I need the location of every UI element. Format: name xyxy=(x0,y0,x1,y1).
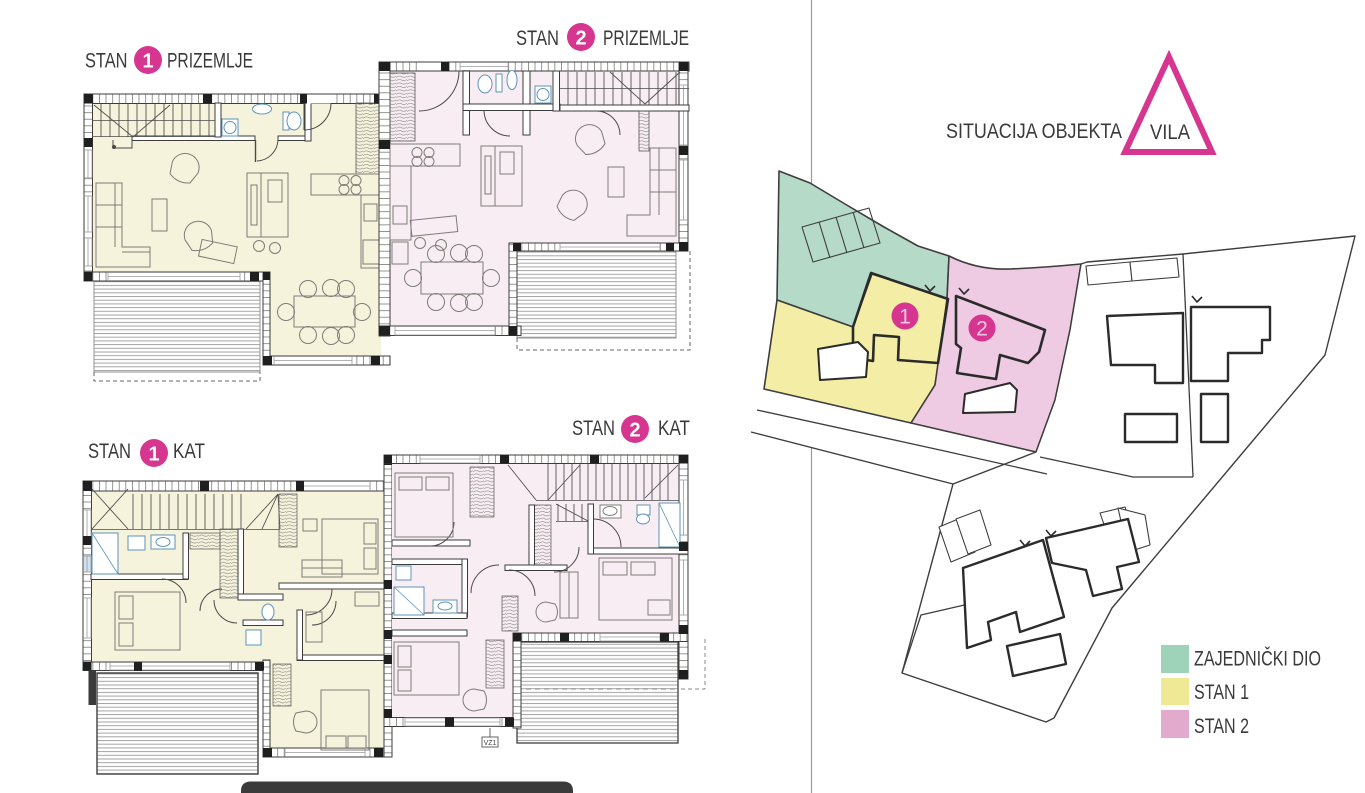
svg-text:PRIZEMLJE: PRIZEMLJE xyxy=(167,50,253,73)
svg-text:1: 1 xyxy=(899,306,911,329)
svg-text:STAN: STAN xyxy=(572,417,615,440)
svg-text:2: 2 xyxy=(976,318,988,341)
svg-text:STAN: STAN xyxy=(85,50,128,73)
svg-text:KAT: KAT xyxy=(658,417,690,440)
svg-text:STAN 1: STAN 1 xyxy=(1194,681,1249,704)
svg-text:SITUACIJA OBJEKTA: SITUACIJA OBJEKTA xyxy=(946,120,1122,143)
svg-text:2: 2 xyxy=(629,420,640,442)
svg-text:ZAJEDNIČKI DIO: ZAJEDNIČKI DIO xyxy=(1194,648,1321,671)
svg-text:VILA: VILA xyxy=(1150,121,1190,144)
svg-text:KAT: KAT xyxy=(173,440,205,463)
svg-text:VZ1: VZ1 xyxy=(484,740,497,747)
svg-text:STAN: STAN xyxy=(516,27,559,50)
svg-text:1: 1 xyxy=(142,51,153,73)
svg-text:2: 2 xyxy=(575,28,586,50)
svg-text:STAN: STAN xyxy=(88,440,131,463)
svg-text:STAN 2: STAN 2 xyxy=(1194,715,1249,738)
svg-text:1: 1 xyxy=(148,444,159,466)
svg-text:PRIZEMLJE: PRIZEMLJE xyxy=(603,27,689,50)
